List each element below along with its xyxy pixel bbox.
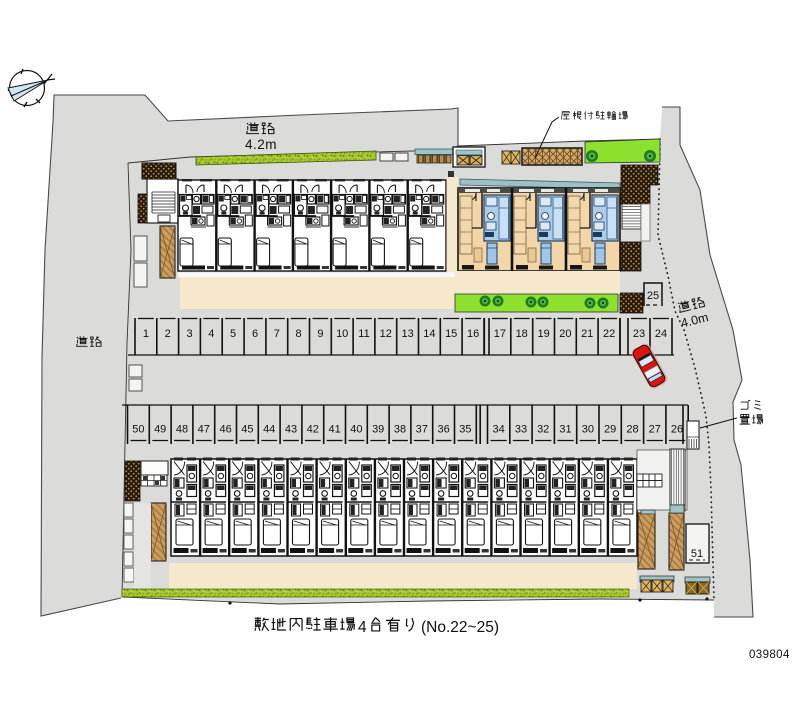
svg-text:11: 11 (358, 328, 369, 340)
svg-text:28: 28 (626, 424, 638, 436)
svg-text:9: 9 (317, 328, 323, 340)
svg-text:49: 49 (154, 424, 166, 436)
svg-text:4: 4 (208, 328, 214, 340)
svg-text:19: 19 (537, 328, 549, 340)
svg-text:4: 4 (358, 619, 367, 636)
svg-text:26: 26 (671, 424, 683, 436)
svg-text:27: 27 (649, 424, 661, 436)
svg-text:12: 12 (380, 328, 392, 340)
svg-text:4.2m: 4.2m (245, 137, 277, 152)
svg-text:42: 42 (307, 424, 319, 436)
svg-text:3: 3 (186, 328, 192, 340)
svg-text:25: 25 (647, 290, 659, 302)
svg-text:(No.22~25): (No.22~25) (421, 619, 499, 636)
svg-text:34: 34 (492, 424, 504, 436)
svg-text:17: 17 (494, 328, 506, 340)
svg-text:41: 41 (328, 424, 340, 436)
svg-text:8: 8 (296, 328, 302, 340)
svg-text:29: 29 (604, 424, 616, 436)
svg-text:039804: 039804 (749, 649, 790, 661)
svg-text:5: 5 (230, 328, 236, 340)
svg-text:51: 51 (691, 548, 703, 560)
svg-text:40: 40 (350, 424, 362, 436)
svg-text:13: 13 (401, 328, 413, 340)
svg-text:31: 31 (559, 424, 571, 436)
svg-text:37: 37 (416, 424, 428, 436)
svg-text:14: 14 (423, 328, 435, 340)
svg-text:10: 10 (336, 328, 348, 340)
svg-text:32: 32 (537, 424, 549, 436)
svg-text:36: 36 (437, 424, 449, 436)
svg-text:18: 18 (516, 328, 528, 340)
svg-text:2: 2 (165, 328, 171, 340)
svg-text:46: 46 (219, 424, 231, 436)
svg-text:20: 20 (559, 328, 571, 340)
svg-text:47: 47 (198, 424, 210, 436)
svg-text:33: 33 (515, 424, 527, 436)
svg-text:23: 23 (633, 328, 645, 340)
svg-text:44: 44 (263, 424, 275, 436)
svg-text:48: 48 (176, 424, 188, 436)
svg-text:45: 45 (241, 424, 253, 436)
svg-text:16: 16 (467, 328, 479, 340)
svg-text:50: 50 (132, 424, 144, 436)
svg-text:15: 15 (445, 328, 457, 340)
svg-text:22: 22 (603, 328, 615, 340)
svg-text:1: 1 (143, 328, 149, 340)
svg-text:38: 38 (394, 424, 406, 436)
svg-text:24: 24 (655, 328, 667, 340)
svg-text:7: 7 (274, 328, 280, 340)
svg-text:39: 39 (372, 424, 384, 436)
svg-text:43: 43 (285, 424, 297, 436)
svg-text:21: 21 (581, 328, 593, 340)
svg-text:6: 6 (252, 328, 258, 340)
svg-text:35: 35 (459, 424, 471, 436)
svg-text:30: 30 (582, 424, 594, 436)
